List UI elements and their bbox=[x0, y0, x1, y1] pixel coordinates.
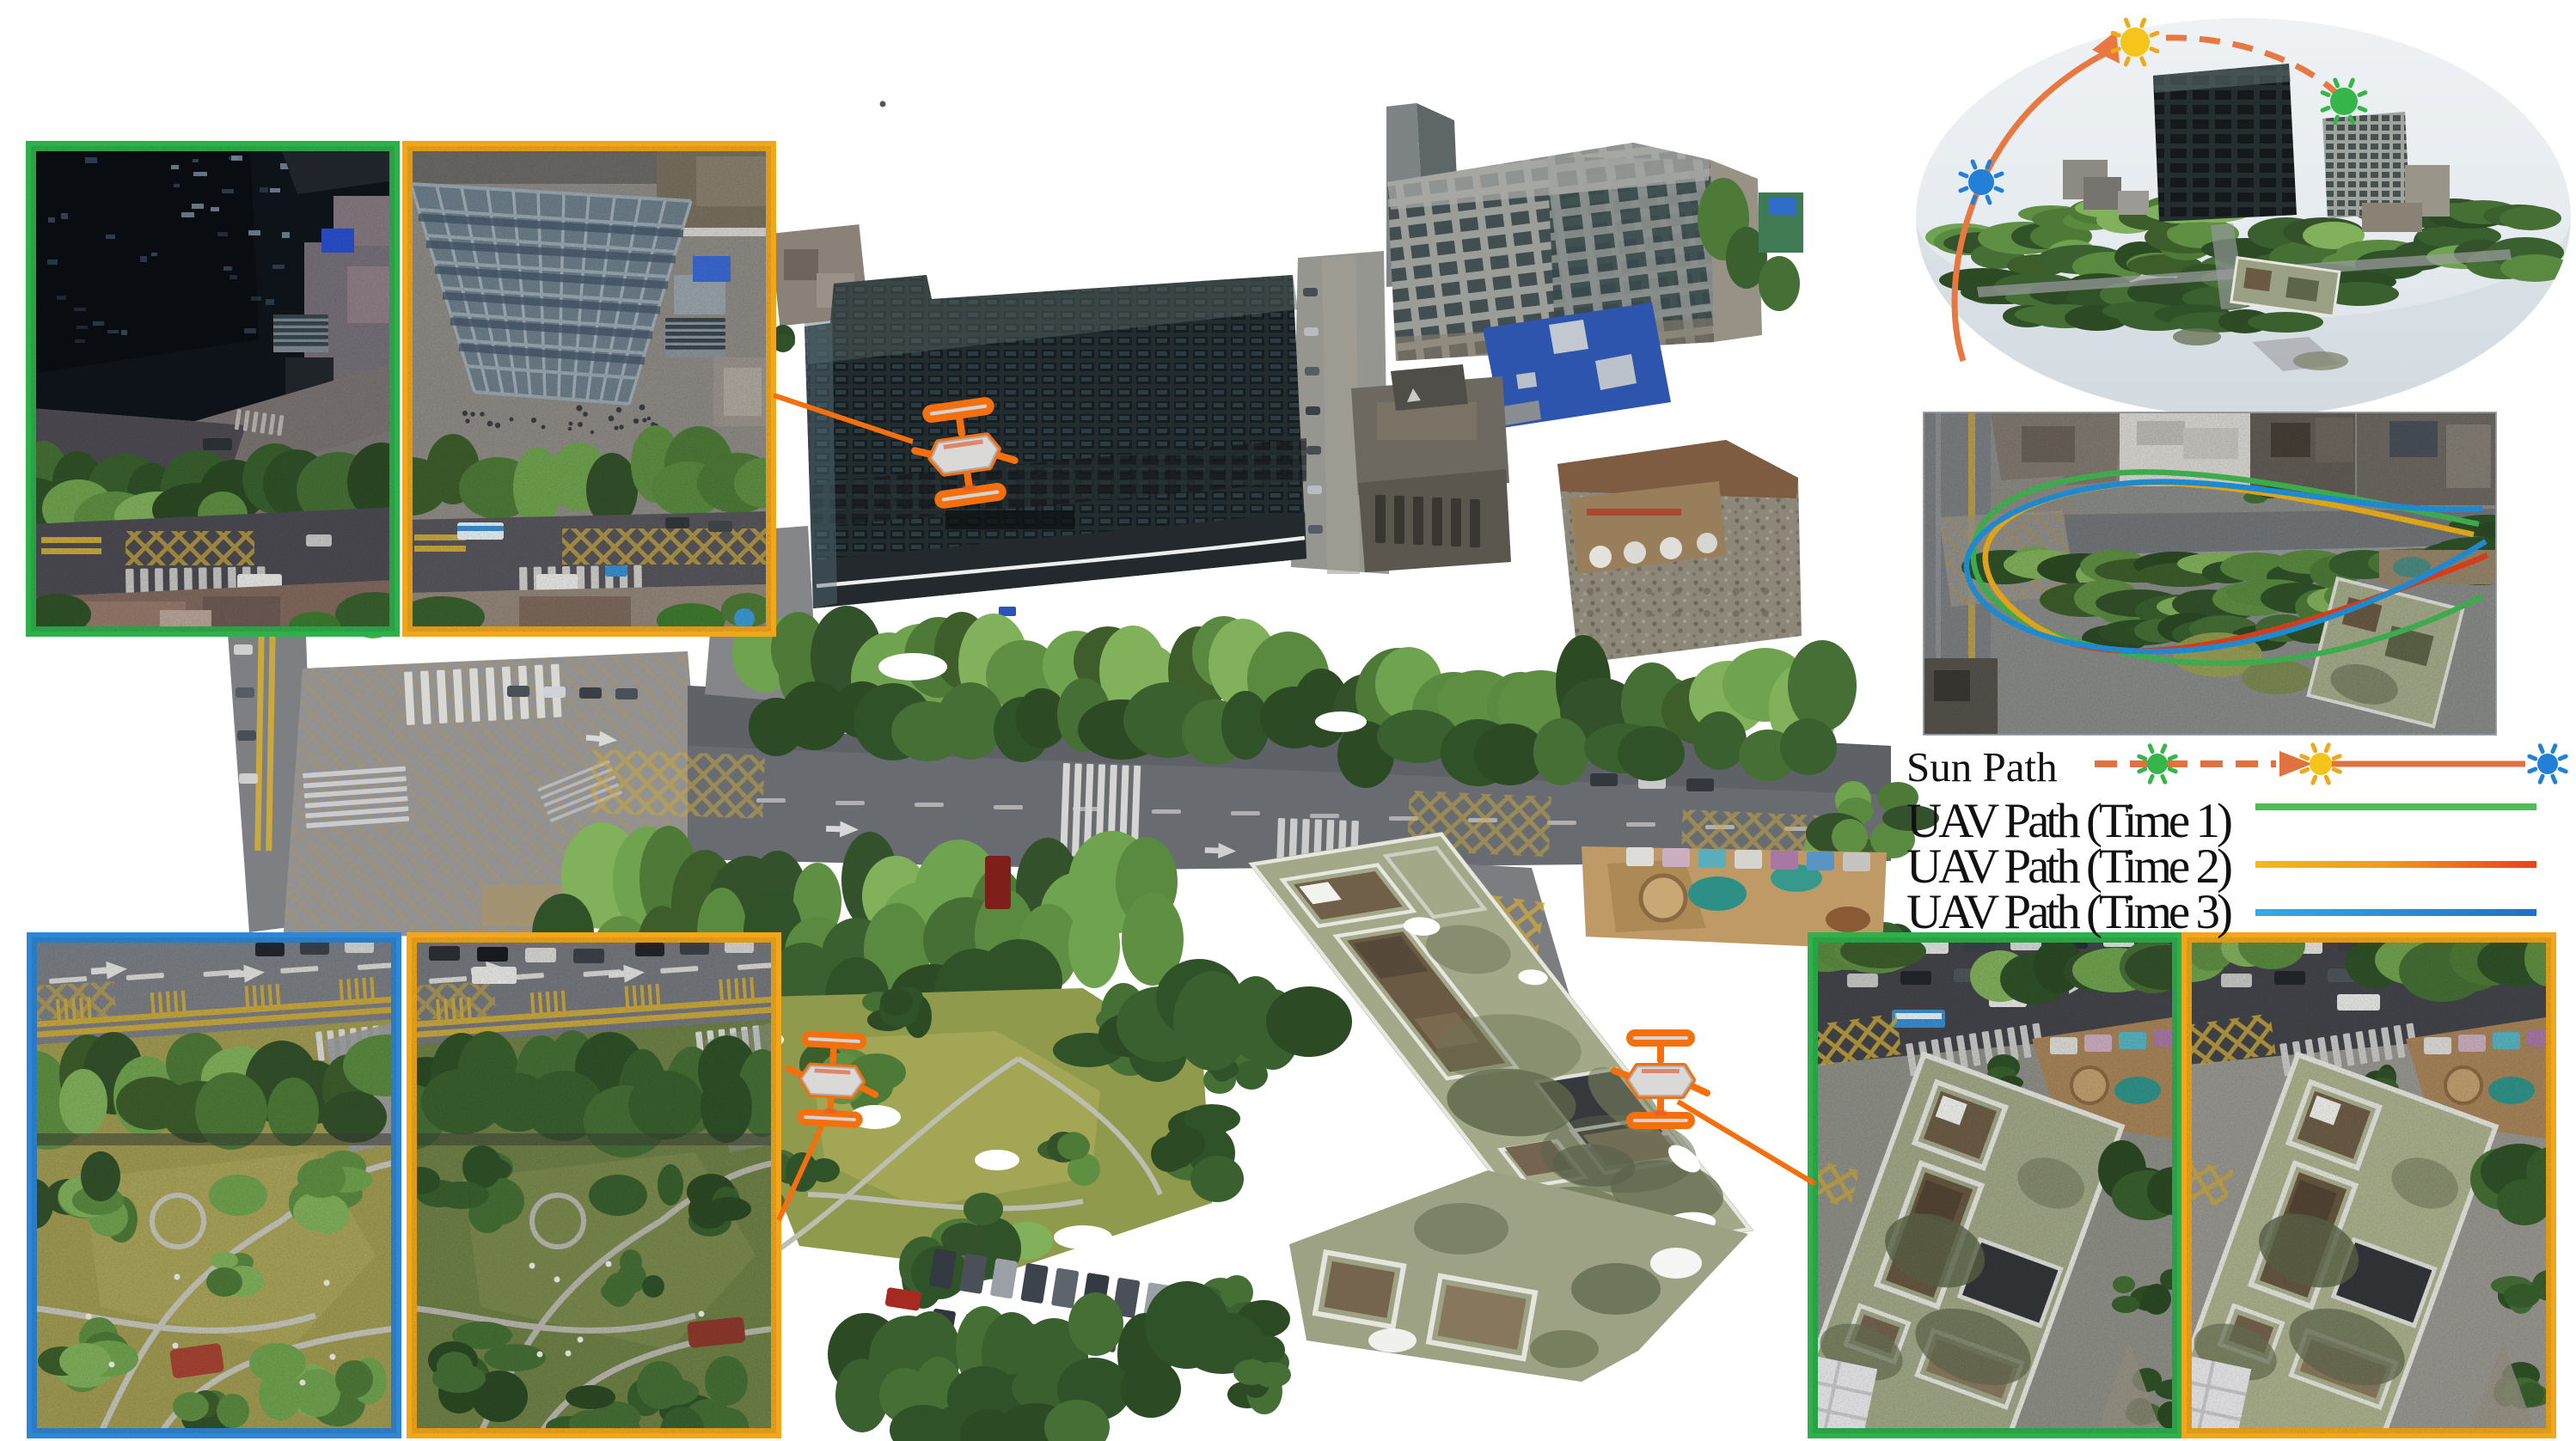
svg-text:UAV Path (Time 3): UAV Path (Time 3) bbox=[1906, 885, 2231, 939]
svg-text:Sun Path: Sun Path bbox=[1906, 743, 2058, 791]
